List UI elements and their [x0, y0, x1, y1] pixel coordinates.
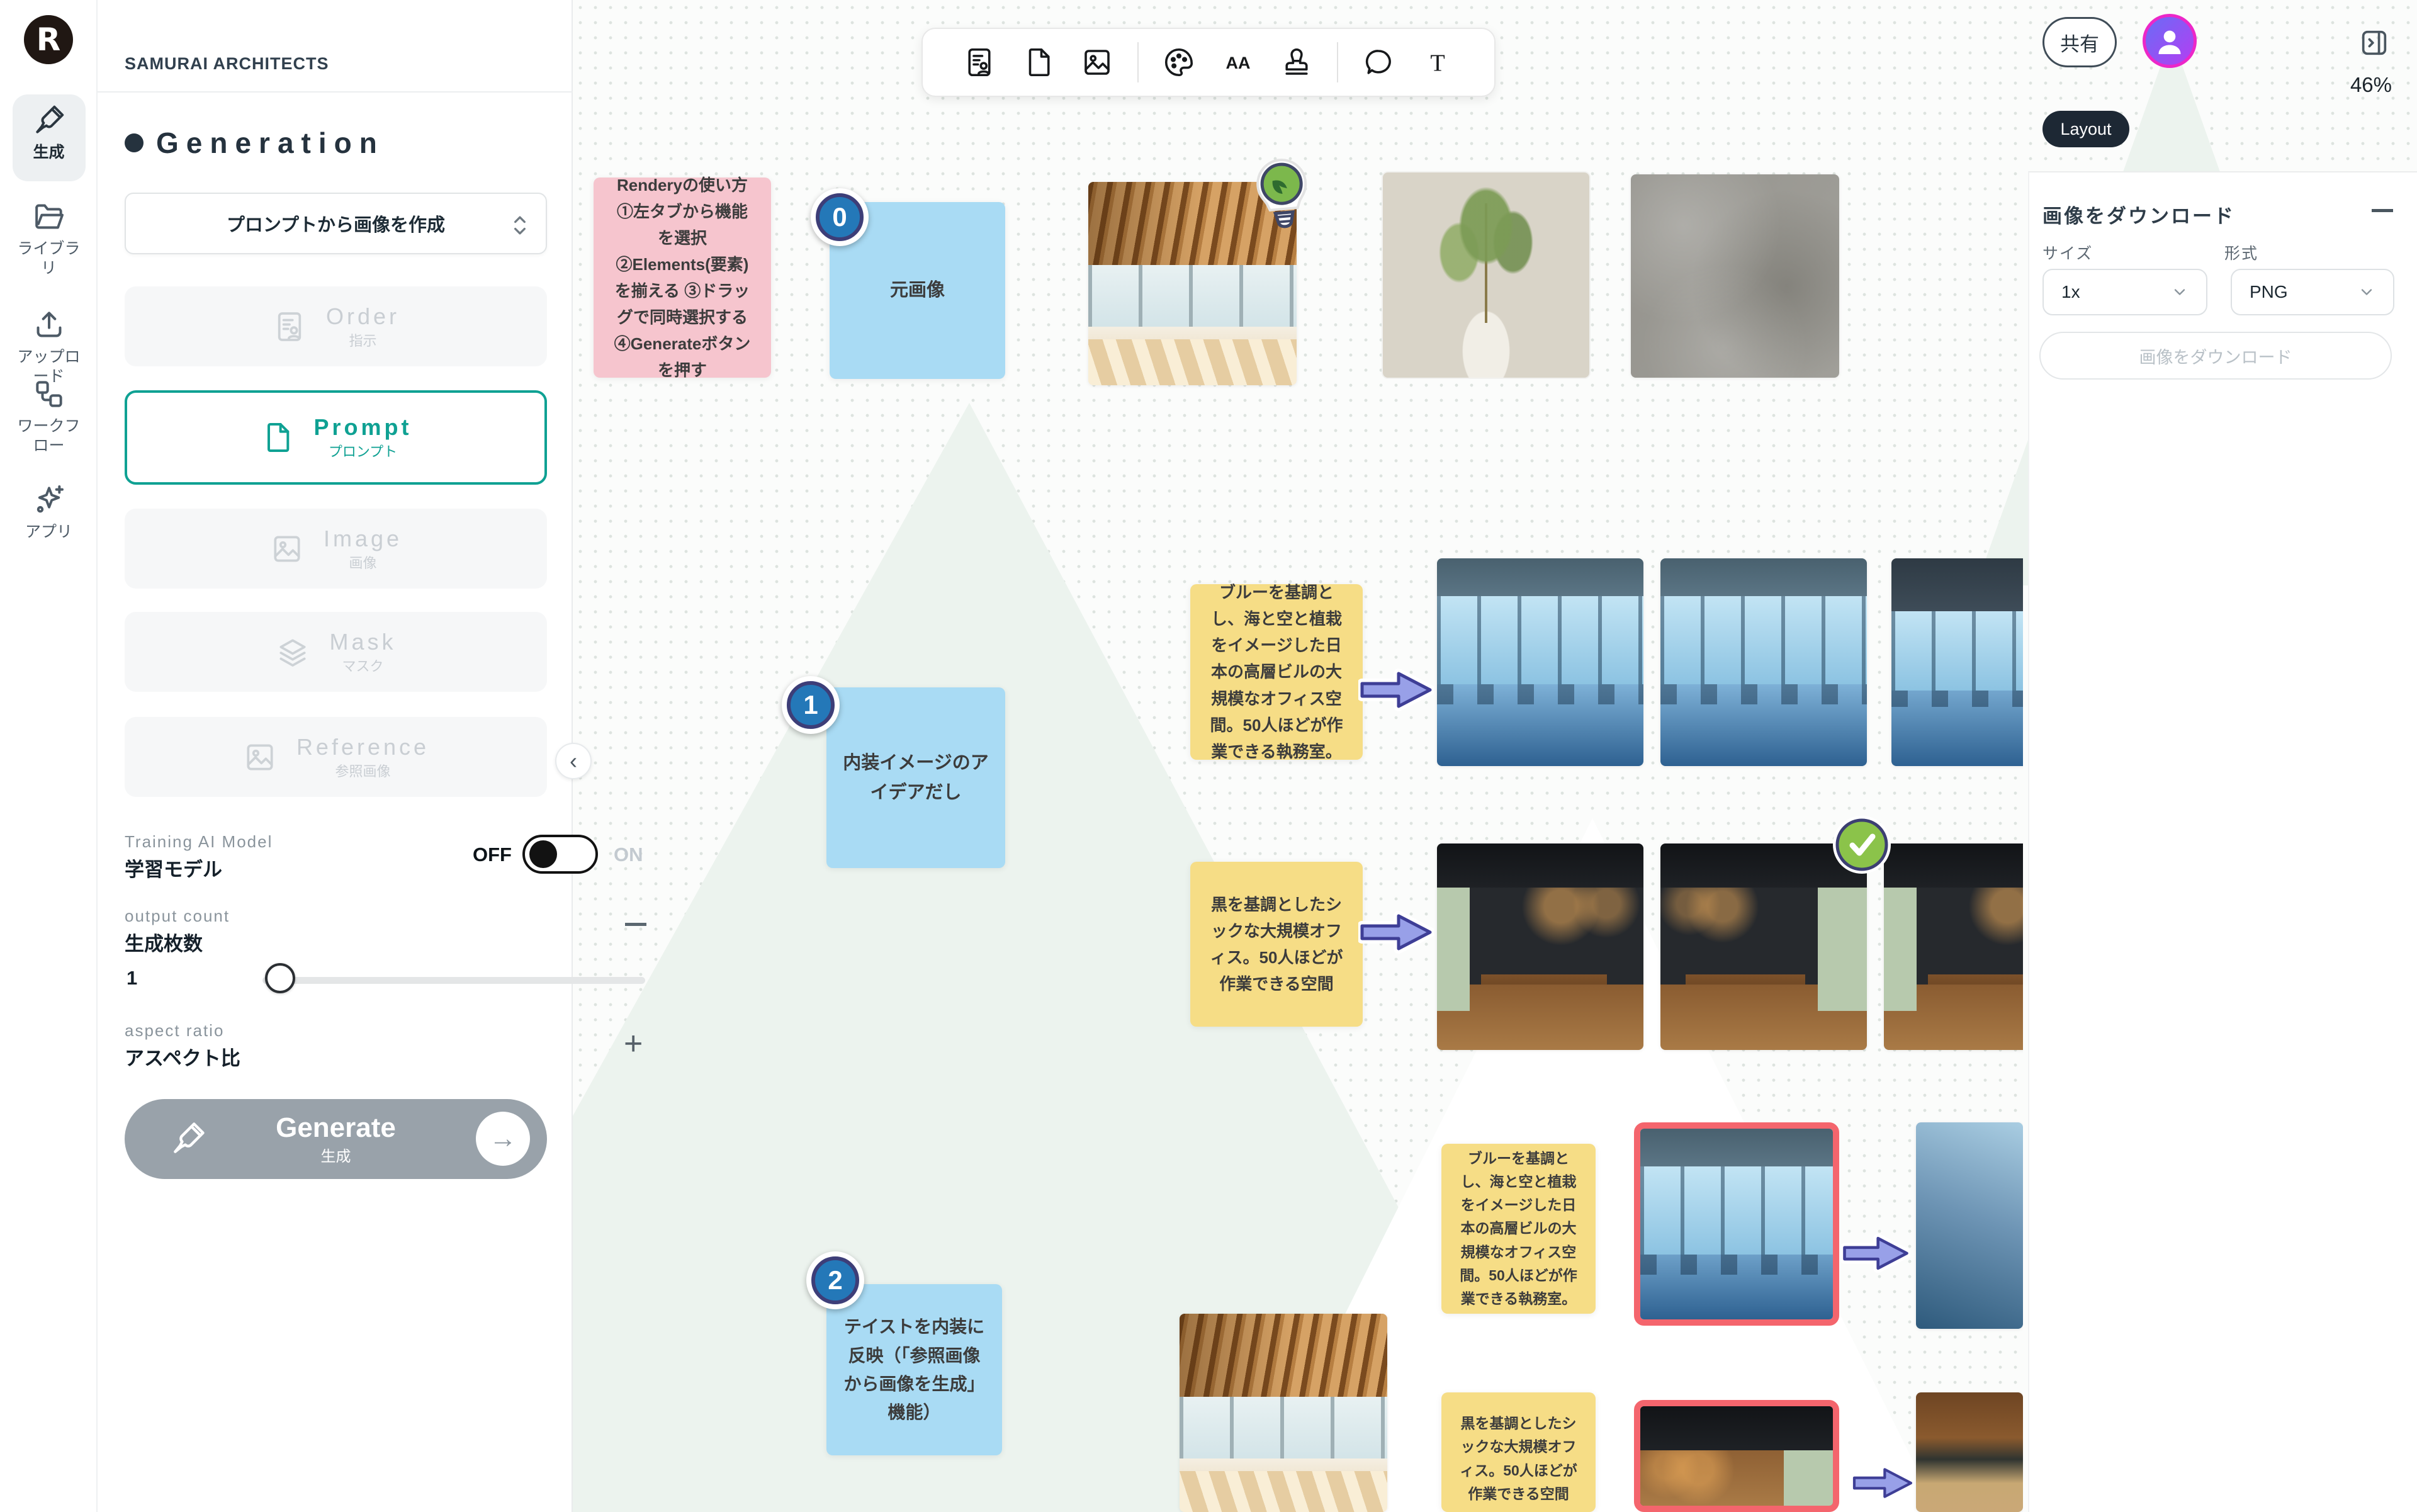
training-model-label-en: Training AI Model [125, 832, 273, 852]
source-room-image-copy[interactable] [1180, 1314, 1387, 1512]
generation-mode-value: プロンプトから画像を作成 [227, 210, 445, 237]
share-button[interactable]: 共有 [2042, 17, 2117, 67]
reference-label-ja: 参照画像 [335, 764, 390, 779]
generated-blue-office-1[interactable] [1437, 558, 1643, 766]
step-badge-1-number: 1 [787, 681, 835, 729]
generated-dark-office-1[interactable] [1437, 843, 1643, 1050]
sidebar-item-label: アプリ [14, 522, 84, 542]
toggle-off-label: OFF [437, 843, 512, 866]
approved-check-sticker[interactable] [1832, 815, 1891, 874]
generated-blue-office-3[interactable] [1891, 558, 2023, 766]
output-count-value: 1 [127, 967, 137, 990]
toolbar-divider [1137, 42, 1139, 82]
brush-icon [169, 1119, 208, 1158]
generated-blue-office-2[interactable] [1660, 558, 1867, 766]
training-model-label-ja: 学習モデル [125, 854, 222, 882]
mask-element-button[interactable]: Mask マスク [125, 612, 547, 692]
zoom-level[interactable]: 46% [2304, 73, 2392, 97]
flow-arrow[interactable] [1841, 1233, 1910, 1274]
blue-prompt-text: ブルーを基調とし、海と空と植栽をイメージした日本の高層ビルの大規模なオフィス空間… [1207, 579, 1346, 765]
aspect-ratio-label-en: aspect ratio [125, 1021, 224, 1041]
sidebar-item-workflow[interactable]: ワークフロー [0, 376, 98, 456]
stamp-icon[interactable] [1278, 44, 1315, 81]
upload-icon [31, 307, 67, 342]
updown-chevron-icon [510, 212, 529, 239]
panel-title: Generation [125, 126, 385, 160]
image-label-en: Image [324, 526, 402, 551]
format-label: 形式 [2224, 241, 2258, 264]
panel-collapse-button[interactable]: ‹ [555, 743, 592, 779]
black-prompt-sticky-note-2[interactable]: 黒を基調としたシックな大規模オフィス。50人ほどが作業できる空間 [1441, 1392, 1596, 1512]
texture-reference-image[interactable] [1631, 174, 1839, 378]
toggle-knob [529, 840, 557, 868]
order-template-icon[interactable] [961, 44, 998, 81]
selected-blue-office-image[interactable] [1634, 1122, 1839, 1326]
output-count-slider-track[interactable] [262, 977, 645, 984]
arrow-right-icon: → [476, 1112, 530, 1166]
plant-reference-image[interactable] [1383, 172, 1589, 378]
download-image-button[interactable]: 画像をダウンロード [2039, 332, 2392, 380]
selected-blue-office-fill [1640, 1129, 1833, 1319]
blue-prompt-sticky-note-2[interactable]: ブルーを基調とし、海と空と植栽をイメージした日本の高層ビルの大規模なオフィス空間… [1441, 1144, 1596, 1314]
layers-icon [275, 635, 310, 670]
brush-icon [31, 103, 67, 138]
image-label-ja: 画像 [349, 555, 376, 571]
flow-arrow[interactable] [1358, 910, 1434, 955]
aspect-ratio-label-ja: アスペクト比 [125, 1042, 240, 1071]
output-count-slider-knob[interactable] [265, 963, 295, 993]
image-icon [242, 740, 278, 775]
order-element-button[interactable]: Order 指示 [125, 286, 547, 366]
order-label-en: Order [326, 303, 400, 329]
step-badge-2[interactable]: 2 [806, 1251, 864, 1309]
prompt-label-ja: プロンプト [329, 444, 397, 460]
sidebar-item-label: ライブラリ [14, 239, 84, 279]
workspace-name: SAMURAI ARCHITECTS [98, 0, 573, 93]
sidebar-item-generate[interactable]: 生成 [0, 103, 98, 162]
canvas-toolbar: AA T [921, 28, 1496, 97]
sidebar-item-library[interactable]: ライブラリ [0, 199, 98, 279]
comment-icon[interactable] [1360, 44, 1397, 81]
selected-dark-office-image[interactable] [1634, 1400, 1839, 1512]
generation-mode-select[interactable]: プロンプトから画像を作成 [125, 193, 547, 254]
image-icon [269, 531, 305, 567]
step1-sticky-note[interactable]: 内装イメージのアイデアだし [826, 687, 1005, 868]
svg-text:AA: AA [1225, 54, 1250, 72]
black-prompt-text: 黒を基調としたシックな大規模オフィス。50人ほどが作業できる空間 [1207, 891, 1346, 997]
generation-panel: SAMURAI ARCHITECTS Generation プロンプトから画像を… [98, 0, 573, 1512]
toolbar-divider [1337, 42, 1338, 82]
mask-label-ja: マスク [342, 658, 383, 674]
step-badge-0[interactable]: 0 [811, 188, 869, 246]
workflow-icon [31, 376, 67, 412]
chevron-down-icon [2358, 283, 2375, 301]
result-wood-interior-image[interactable] [1916, 1392, 2023, 1512]
step0-text: 元画像 [890, 276, 945, 305]
document-icon[interactable] [1020, 44, 1057, 81]
step-badge-1[interactable]: 1 [782, 676, 840, 734]
reference-element-button[interactable]: Reference 参照画像 [125, 717, 547, 797]
panel-title-text: Generation [156, 126, 385, 160]
collapse-panel-icon[interactable] [2358, 26, 2391, 59]
prompt-element-button[interactable]: Prompt プロンプト [125, 390, 547, 485]
mask-label-en: Mask [329, 629, 396, 655]
training-model-toggle[interactable] [522, 835, 598, 874]
text-icon[interactable]: T [1419, 44, 1456, 81]
format-select[interactable]: PNG [2231, 269, 2394, 315]
download-section-collapse-icon[interactable] [2372, 209, 2393, 212]
image-icon[interactable] [1079, 44, 1115, 81]
logo-letter: R [37, 21, 61, 58]
palette-icon[interactable] [1161, 44, 1197, 81]
black-prompt-sticky-note[interactable]: 黒を基調としたシックな大規模オフィス。50人ほどが作業できる空間 [1190, 862, 1363, 1027]
layout-badge-label: Layout [2060, 120, 2111, 139]
format-select-value: PNG [2250, 282, 2288, 302]
output-count-label-ja: 生成枚数 [125, 928, 203, 956]
selected-dark-office-fill [1640, 1406, 1833, 1506]
folder-icon [31, 199, 67, 234]
image-element-button[interactable]: Image 画像 [125, 509, 547, 589]
share-button-label: 共有 [2060, 28, 2099, 57]
generate-label-ja: 生成 [320, 1148, 351, 1165]
prompt-label-en: Prompt [314, 414, 412, 440]
blue-prompt-sticky-note[interactable]: ブルーを基調とし、海と空と植栽をイメージした日本の高層ビルの大規模なオフィス空間… [1190, 584, 1363, 760]
workspace-name-text: SAMURAI ARCHITECTS [125, 54, 329, 74]
reference-label-en: Reference [296, 734, 429, 760]
font-icon[interactable]: AA [1220, 44, 1256, 81]
step2-sticky-note[interactable]: テイストを内装に反映（「参照画像から画像を生成」機能） [826, 1284, 1002, 1455]
howto-sticky-note[interactable]: Renderyの使い方 ①左タブから機能を選択 ②Elements(要素)を揃え… [594, 178, 771, 378]
size-label: サイズ [2042, 241, 2093, 264]
order-doc-icon [272, 309, 307, 344]
flow-arrow[interactable] [1851, 1464, 1914, 1503]
step-badge-2-number: 2 [811, 1256, 859, 1304]
download-image-button-label: 画像をダウンロード [2139, 344, 2292, 368]
sidebar-item-upload[interactable]: アップロード [0, 307, 98, 387]
file-icon [260, 420, 295, 455]
order-label-ja: 指示 [349, 333, 376, 349]
idea-bulb-sticker[interactable] [1249, 154, 1317, 240]
aspect-ratio-plus-icon[interactable]: + [624, 1025, 643, 1063]
avatar[interactable] [2143, 14, 2197, 68]
toggle-on-label: ON [614, 843, 643, 866]
step-badge-0-number: 0 [816, 193, 864, 241]
app-icon-rail: R 生成 ライブラリ アップロード ワークフロー [0, 0, 98, 1512]
generated-dark-office-3[interactable] [1884, 843, 2023, 1050]
step1-text: 内装イメージのアイデアだし [843, 748, 989, 808]
sidebar-item-label: 生成 [14, 143, 84, 162]
flow-arrow[interactable] [1358, 667, 1434, 713]
black-prompt-text-2: 黒を基調としたシックな大規模オフィス。50人ほどが作業できる空間 [1458, 1412, 1579, 1506]
sidebar-item-label: ワークフロー [14, 417, 84, 456]
size-select[interactable]: 1x [2042, 269, 2207, 315]
user-icon [2152, 23, 2187, 59]
size-select-value: 1x [2061, 282, 2080, 302]
download-section-title: 画像をダウンロード [2042, 200, 2235, 228]
title-bullet-icon [125, 133, 144, 152]
blue-prompt-text-2: ブルーを基調とし、海と空と植栽をイメージした日本の高層ビルの大規模なオフィス空間… [1458, 1147, 1579, 1311]
generate-button[interactable]: Generate 生成 → [125, 1099, 547, 1179]
generate-label-en: Generate [276, 1112, 396, 1143]
svg-text:T: T [1430, 50, 1445, 77]
sidebar-item-apps[interactable]: アプリ [0, 482, 98, 542]
sparkles-icon [31, 482, 67, 517]
layout-badge[interactable]: Layout [2042, 111, 2129, 147]
output-count-label-en: output count [125, 906, 230, 926]
step2-text: テイストを内装に反映（「参照画像から画像を生成」機能） [843, 1312, 986, 1426]
chevron-down-icon [2171, 283, 2189, 301]
output-count-minus-icon[interactable] [625, 923, 646, 926]
generated-dark-office-2[interactable] [1660, 843, 1867, 1050]
result-blue-interior-image[interactable] [1916, 1122, 2023, 1329]
howto-text: Renderyの使い方 ①左タブから機能を選択 ②Elements(要素)を揃え… [610, 172, 755, 384]
rendery-logo[interactable]: R [24, 15, 73, 64]
